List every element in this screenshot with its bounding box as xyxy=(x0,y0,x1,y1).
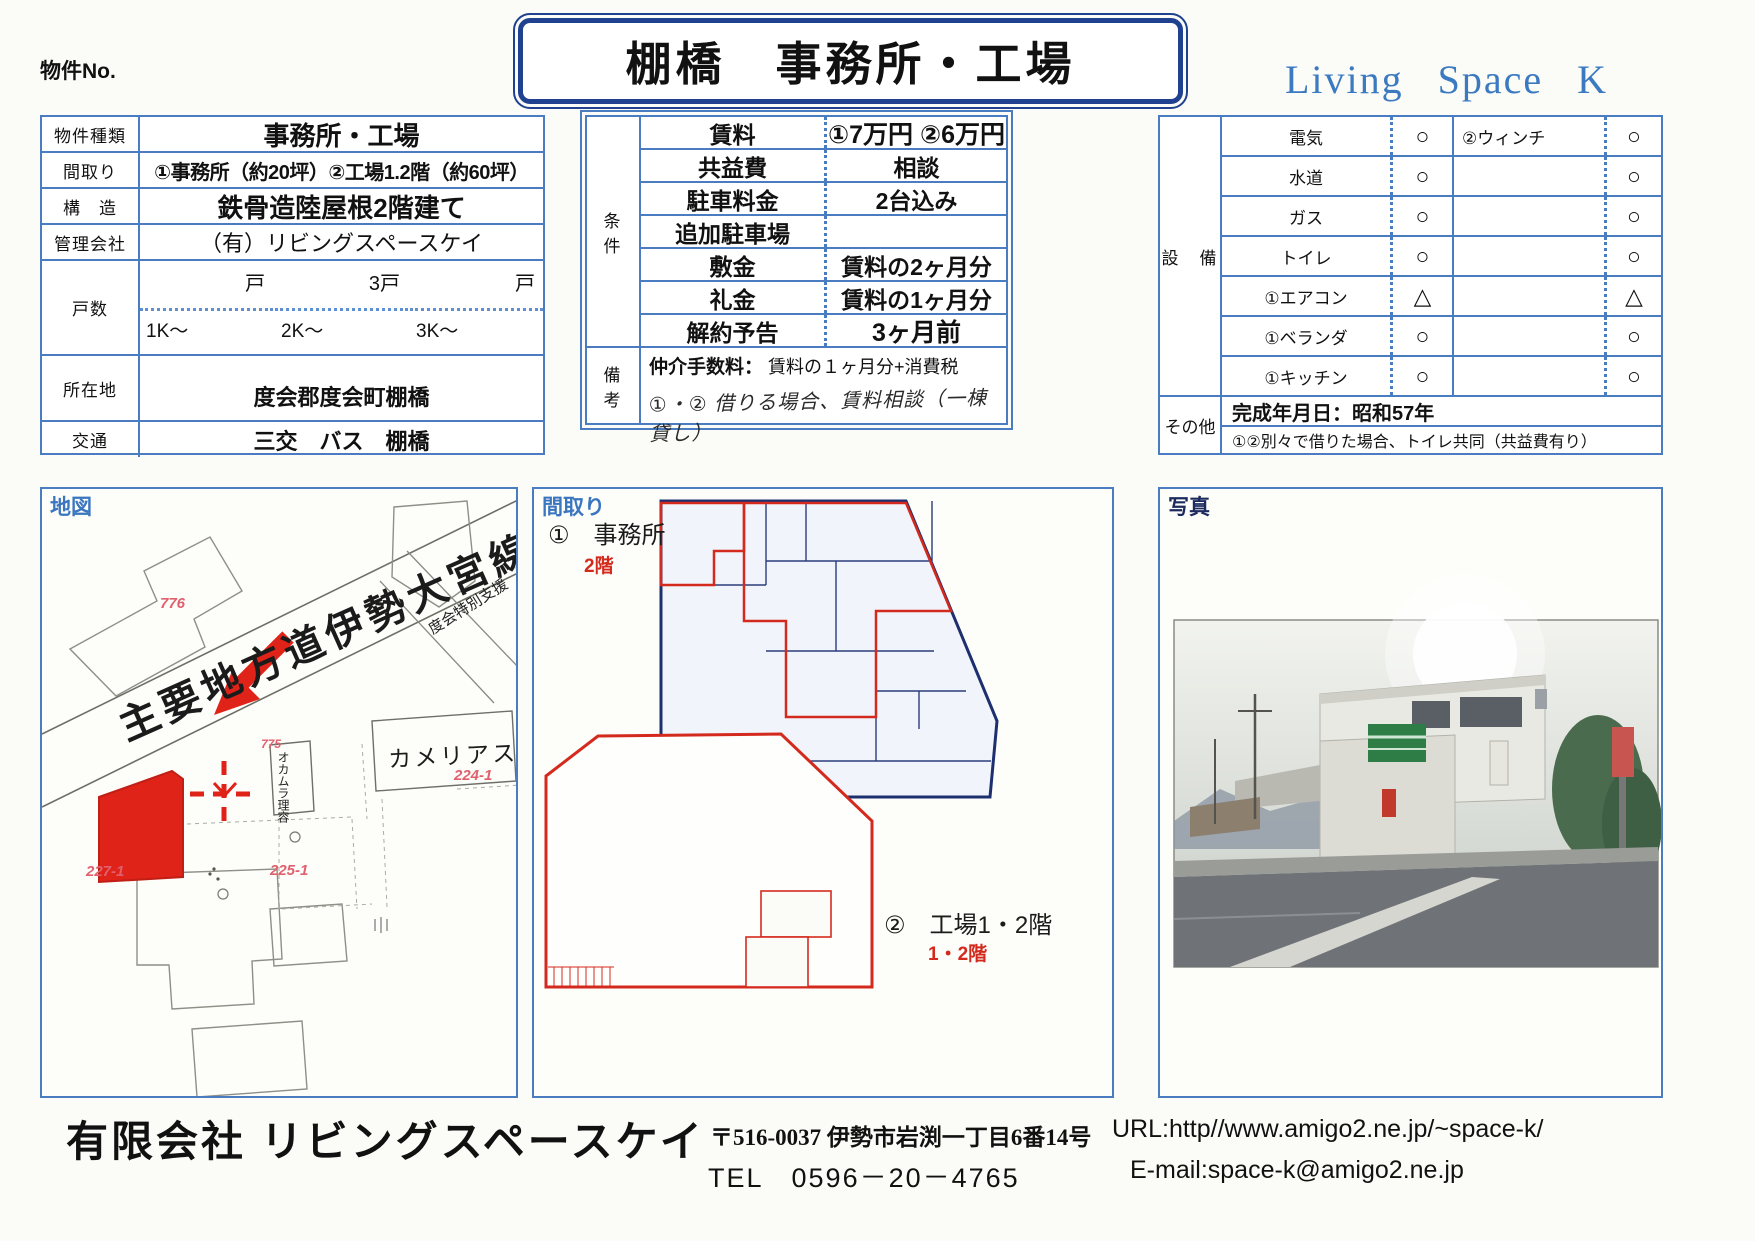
condition-name: 追加駐車場 xyxy=(641,216,827,247)
equipment-name: ガス xyxy=(1222,197,1390,235)
table-row: 交通 三交 バス 棚橋 xyxy=(42,422,543,457)
condition-row: 礼金 賃料の1ヶ月分 xyxy=(641,282,1006,315)
equipment-mark: ○ xyxy=(1390,317,1452,355)
row-label: 構 造 xyxy=(42,189,140,223)
row-label: 物件種類 xyxy=(42,117,140,151)
unit-count: 3戸 xyxy=(369,267,400,296)
equipment-row: ①ベランダ ○ ○ xyxy=(1222,317,1661,357)
condition-value: ①7万円 ②6万円 xyxy=(827,117,1006,148)
equipment-name-2: ②ウィンチ xyxy=(1452,117,1604,155)
row-label: 戸数 xyxy=(42,261,140,354)
equipment-name-2 xyxy=(1452,357,1604,395)
equipment-mark-2: ○ xyxy=(1604,117,1661,155)
map-panel: 地図 xyxy=(40,487,518,1098)
unit-size: 1K～ xyxy=(146,316,188,343)
equipment-name-2 xyxy=(1452,157,1604,195)
company-email: E-mail:space-k@amigo2.ne.jp xyxy=(1130,1156,1464,1185)
condition-row: 敷金 賃料の2ヶ月分 xyxy=(641,249,1006,282)
dotted-divider xyxy=(275,308,408,311)
completion-date: 完成年月日：昭和57年 xyxy=(1222,397,1661,427)
equipment-name: ①エアコン xyxy=(1222,277,1390,315)
row-label: 間取り xyxy=(42,153,140,187)
other-note: ①②別々で借りた場合、トイレ共同（共益費有り） xyxy=(1222,427,1661,453)
unit1-floor-label: 2階 xyxy=(584,551,614,578)
unit2-label: ② 工場1・2階 xyxy=(884,905,1052,940)
equipment-mark-2: △ xyxy=(1604,277,1661,315)
condition-name: 礼金 xyxy=(641,282,827,313)
company-url: URL:http//www.amigo2.ne.jp/~space-k/ xyxy=(1112,1115,1543,1144)
condition-row: 駐車料金 2台込み xyxy=(641,183,1006,216)
equipment-mark: △ xyxy=(1390,277,1452,315)
floorplan-header: 間取り xyxy=(539,491,608,521)
row-value: 三交 バス 棚橋 xyxy=(140,422,543,457)
equipment-name: ①キッチン xyxy=(1222,357,1390,395)
equipment-mark: ○ xyxy=(1390,197,1452,235)
equipment-name-2 xyxy=(1452,237,1604,275)
equipment-name-2 xyxy=(1452,197,1604,235)
company-name: 有限会社 リビングスペースケイ xyxy=(66,1108,705,1169)
equipment-mark: ○ xyxy=(1390,117,1452,155)
table-row: 構 造 鉄骨造陸屋根2階建て xyxy=(42,189,543,225)
row-label: 所在地 xyxy=(42,356,140,420)
unit-count: 戸 xyxy=(245,267,265,296)
building-photo xyxy=(1160,489,1663,1098)
table-row: 管理会社 （有）リビングスペースケイ xyxy=(42,225,543,261)
equipment-mark-2: ○ xyxy=(1604,237,1661,275)
condition-row: 追加駐車場 xyxy=(641,216,1006,249)
unit-count-cells: 1K～ 戸 2K～ 3戸 3K～ 戸 xyxy=(140,261,543,354)
equipment-table: 設 備 その他 電気 ○ ②ウィンチ ○ 水道 ○ ○ ガス ○ ○ xyxy=(1158,115,1663,455)
agency-fee-label: 仲介手数料： xyxy=(649,357,763,378)
condition-row: 賃料 ①7万円 ②6万円 xyxy=(641,117,1006,150)
parcel-number: 776 xyxy=(160,595,185,612)
dotted-divider xyxy=(140,308,273,311)
table-row: 間取り ①事務所（約20坪）②工場1.2階（約60坪） xyxy=(42,153,543,189)
equipment-mark: ○ xyxy=(1390,357,1452,395)
table-row: 所在地 度会郡度会町棚橋 xyxy=(42,356,543,422)
equipment-name: トイレ xyxy=(1222,237,1390,275)
floorplan-drawing xyxy=(534,489,1114,1098)
floorplan-panel: 間取り xyxy=(532,487,1114,1098)
unit2-floor-label: 1・2階 xyxy=(928,939,987,966)
table-row: 物件種類 事務所・工場 xyxy=(42,117,543,153)
condition-name: 敷金 xyxy=(641,249,827,280)
condition-value xyxy=(827,216,1006,247)
condition-name: 駐車料金 xyxy=(641,183,827,214)
equipment-mark-2: ○ xyxy=(1604,157,1661,195)
row-value: 事務所・工場 xyxy=(140,117,543,151)
condition-row: 共益費 相談 xyxy=(641,150,1006,183)
unit-size: 3K～ xyxy=(416,316,458,343)
property-no-label: 物件No. xyxy=(40,55,116,85)
equipment-row: ①キッチン ○ ○ xyxy=(1222,357,1661,397)
row-value: 度会郡度会町棚橋 xyxy=(140,356,543,420)
condition-name: 解約予告 xyxy=(641,315,827,346)
condition-name: 共益費 xyxy=(641,150,827,181)
row-value: （有）リビングスペースケイ xyxy=(140,225,543,259)
map-header: 地図 xyxy=(47,491,95,521)
brand-logo-text: Living Space K xyxy=(1285,56,1675,103)
equipment-name-2 xyxy=(1452,317,1604,355)
parcel-number: 224-1 xyxy=(454,767,492,784)
remarks-cell: 仲介手数料： 賃料の１ヶ月分+消費税 ①・② 借りる場合、賃料相談（一棟貸し） xyxy=(641,348,1006,447)
condition-value: 賃料の2ヶ月分 xyxy=(827,249,1006,280)
unit-size: 2K～ xyxy=(281,316,323,343)
remarks-label: 備 考 xyxy=(587,348,639,423)
equipment-side-col: 設 備 その他 xyxy=(1160,117,1222,453)
dotted-divider xyxy=(410,308,543,311)
conditions-table: 条 件 備 考 賃料 ①7万円 ②6万円 共益費 相談 駐車料金 2台込み 追加… xyxy=(585,115,1008,425)
property-flyer-sheet: 物件No. 棚橋 事務所・工場 Living Space K 物件種類 事務所・… xyxy=(0,0,1755,1241)
equipment-row: 電気 ○ ②ウィンチ ○ xyxy=(1222,117,1661,157)
barber-label: オカムラ理容 xyxy=(276,751,290,823)
photo-header: 写真 xyxy=(1165,491,1213,521)
condition-value: 2台込み xyxy=(827,183,1006,214)
row-label: 交通 xyxy=(42,422,140,457)
conditions-side-col: 条 件 備 考 xyxy=(587,117,641,423)
condition-value: 3ヶ月前 xyxy=(827,315,1006,346)
equipment-mark: ○ xyxy=(1390,237,1452,275)
equipment-mark: ○ xyxy=(1390,157,1452,195)
equipment-mark-2: ○ xyxy=(1604,317,1661,355)
equipment-mark-2: ○ xyxy=(1604,357,1661,395)
handwritten-note: ①・② 借りる場合、賃料相談（一棟貸し） xyxy=(648,381,998,446)
parcel-number: 225-1 xyxy=(270,862,308,879)
agency-fee-value: 賃料の１ヶ月分+消費税 xyxy=(768,357,959,377)
company-address: 〒516-0037 伊勢市岩渕一丁目6番14号 xyxy=(710,1118,1091,1152)
title-box: 棚橋 事務所・工場 xyxy=(518,18,1183,104)
condition-row: 解約予告 3ヶ月前 xyxy=(641,315,1006,348)
unit-count: 戸 xyxy=(515,267,535,296)
equipment-name: 水道 xyxy=(1222,157,1390,195)
property-table: 物件種類 事務所・工場 間取り ①事務所（約20坪）②工場1.2階（約60坪） … xyxy=(40,115,545,455)
equipment-row: ①エアコン △ △ xyxy=(1222,277,1661,317)
other-label: その他 xyxy=(1160,397,1220,453)
company-tel: TEL 0596－20－4765 xyxy=(708,1156,1020,1195)
parcel-number: 227-1 xyxy=(86,863,124,880)
condition-name: 賃料 xyxy=(641,117,827,148)
page-title: 棚橋 事務所・工場 xyxy=(626,28,1076,94)
equipment-row: ガス ○ ○ xyxy=(1222,197,1661,237)
photo-panel: 写真 xyxy=(1158,487,1663,1098)
condition-value: 相談 xyxy=(827,150,1006,181)
equipment-name: ①ベランダ xyxy=(1222,317,1390,355)
camellia-label: カメリアス xyxy=(387,734,518,775)
equipment-row: トイレ ○ ○ xyxy=(1222,237,1661,277)
row-value: 鉄骨造陸屋根2階建て xyxy=(140,189,543,223)
unit-count-row: 戸数 1K～ 戸 2K～ 3戸 3K～ 戸 xyxy=(42,261,543,356)
equipment-label: 設 備 xyxy=(1160,117,1220,397)
equipment-row: 水道 ○ ○ xyxy=(1222,157,1661,197)
conditions-label: 条 件 xyxy=(587,117,639,348)
row-value: ①事務所（約20坪）②工場1.2階（約60坪） xyxy=(140,153,543,187)
equipment-name-2 xyxy=(1452,277,1604,315)
row-label: 管理会社 xyxy=(42,225,140,259)
condition-value: 賃料の1ヶ月分 xyxy=(827,282,1006,313)
equipment-name: 電気 xyxy=(1222,117,1390,155)
parcel-number: 775 xyxy=(261,737,281,751)
equipment-mark-2: ○ xyxy=(1604,197,1661,235)
